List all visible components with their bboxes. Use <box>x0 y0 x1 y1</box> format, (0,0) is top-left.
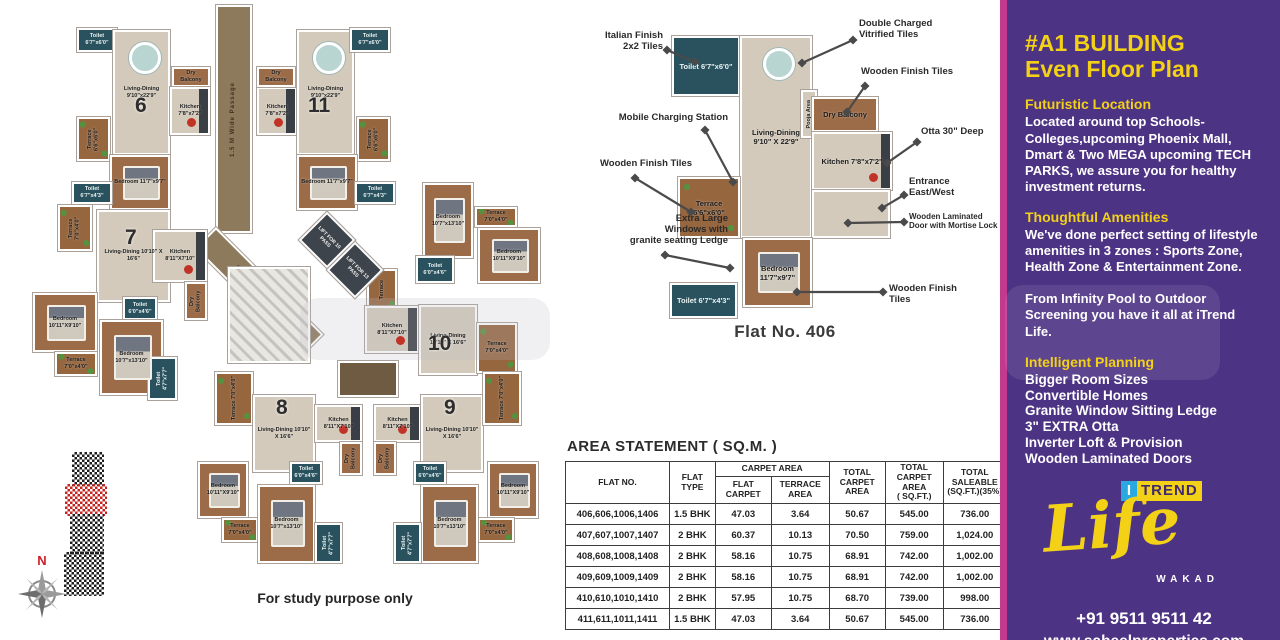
compass-icon <box>16 568 68 620</box>
table-cell: 406,606,1006,1406 <box>566 504 670 525</box>
f8-dry-balcony: Dry Balcony <box>340 442 362 475</box>
annotation-label: Entrance East/West <box>909 176 989 198</box>
f8-toilet-hall: Toilet 6'0"x4'6" <box>290 462 322 484</box>
table-cell: 407,607,1007,1407 <box>566 525 670 546</box>
table-cell: 2 BHK <box>670 525 716 546</box>
annotation-label: Mobile Charging Station <box>603 112 728 123</box>
brochure-page: 1.5 M Wide Passage2 M Wide PassageToilet… <box>0 0 1280 640</box>
passage-vertical: 1.5 M Wide Passage <box>216 5 252 233</box>
table-cell: 68.70 <box>829 588 885 609</box>
annotation-label: Extra Large Windows with granite seating… <box>580 213 728 247</box>
f10-terrace-bottom: Terrace 7'0"x4'0" <box>477 323 517 373</box>
f8-terrace-bottom: Terrace 7'0"x4'0" <box>222 518 258 542</box>
flat-number-7: 7 <box>125 227 137 248</box>
table-cell: 411,611,1011,1411 <box>566 609 670 630</box>
f7-terrace-left: Terrace 7'0"x4'0" <box>55 352 97 376</box>
f8-kitchen: Kitchen 8'11"X7'10" <box>315 405 362 442</box>
f11-toilet-top: Toilet 6'7"x6'0" <box>350 28 390 52</box>
table-cell: 1,002.00 <box>943 546 1006 567</box>
annotation-label: Wooden Finish Tiles <box>580 158 692 169</box>
info-sidebar: #A1 BUILDINGEven Floor Plan Futuristic L… <box>1000 0 1280 640</box>
table-cell: 739.00 <box>885 588 943 609</box>
table-cell: 1.5 BHK <box>670 504 716 525</box>
area-statement: AREA STATEMENT ( SQ.M. ) FLAT NO. FLAT T… <box>565 438 1007 630</box>
f9-toilet-bottom: Toilet 4'7"x7'7" <box>394 523 421 563</box>
table-cell: 759.00 <box>885 525 943 546</box>
lift-lobby <box>338 361 398 397</box>
f6-living: Living-Dining 9'10"x22'9" <box>113 30 170 155</box>
table-cell: 2 BHK <box>670 546 716 567</box>
compass-rose: N <box>12 553 72 625</box>
f6-bedroom: Bedroom 11'7"x9'7" <box>110 155 170 210</box>
table-cell: 736.00 <box>943 609 1006 630</box>
f8-terrace-top: Terrace 7'0"x4'0" <box>215 372 253 425</box>
table-cell: 10.75 <box>771 567 829 588</box>
intelligent-planning-list: Bigger Room SizesConvertible HomesGranit… <box>1025 372 1263 468</box>
annotation-label: Wooden Laminated Door with Mortise Lock <box>909 212 1021 231</box>
col-flat-type: FLAT TYPE <box>670 462 716 504</box>
table-cell: 47.03 <box>715 504 771 525</box>
f10-bedroom-top: Bedroom 10'7"x13'10" <box>423 183 473 258</box>
table-cell: 545.00 <box>885 609 943 630</box>
table-cell: 10.75 <box>771 546 829 567</box>
table-cell: 1,024.00 <box>943 525 1006 546</box>
annotation-label: Wooden Finish Tiles <box>889 283 979 305</box>
flat-number-9: 9 <box>444 397 456 418</box>
list-item: Inverter Loft & Provision <box>1025 435 1263 451</box>
table-cell: 2 BHK <box>670 567 716 588</box>
f9-kitchen: Kitchen 8'11"X7'10" <box>374 405 421 442</box>
f10-terrace-right: Terrace 7'0"x4'0" <box>475 207 517 227</box>
f7-bedroom-left: Bedroom 10'11"X9'10" <box>33 293 97 352</box>
f9-bedroom-right: Bedroom 10'11"X9'10" <box>488 462 538 518</box>
table-cell: 50.67 <box>829 504 885 525</box>
table-cell: 736.00 <box>943 504 1006 525</box>
table-cell: 2 BHK <box>670 588 716 609</box>
table-cell: 409,609,1009,1409 <box>566 567 670 588</box>
f8-bedroom-bottom: Bedroom 10'7"x13'10" <box>258 485 315 563</box>
f6-toilet-bottom: Toilet 6'7"x4'3" <box>72 182 112 204</box>
f11-living: Living-Dining 9'10"x22'9" <box>297 30 354 155</box>
building-title: #A1 BUILDINGEven Floor Plan <box>1025 30 1263 82</box>
f9-terrace-bottom: Terrace 7'0"x4'0" <box>478 518 514 542</box>
f9-terrace-top: Terrace 7'0"x4'0" <box>483 372 521 425</box>
logo-city-label: WAKAD <box>1156 574 1219 585</box>
col-flat-carpet: FLAT CARPET <box>715 477 771 504</box>
table-cell: 60.37 <box>715 525 771 546</box>
section-heading-futuristic-location: Futuristic Location <box>1025 96 1263 112</box>
list-item: Convertible Homes <box>1025 388 1263 404</box>
table-cell: 58.16 <box>715 567 771 588</box>
stairs <box>228 267 310 363</box>
f11-toilet-bottom: Toilet 6'7"x4'3" <box>355 182 395 204</box>
f7-terrace-top: Terrace 7'0"x4'0" <box>58 205 92 251</box>
f11-kitchen: Kitchen 7'8"x7'2" <box>257 87 297 135</box>
table-cell: 58.16 <box>715 546 771 567</box>
annotation-label: Otta 30" Deep <box>921 126 1016 137</box>
table-row: 406,606,1006,14061.5 BHK47.033.6450.6754… <box>566 504 1007 525</box>
table-cell: 57.95 <box>715 588 771 609</box>
table-cell: 70.50 <box>829 525 885 546</box>
table-cell: 1.5 BHK <box>670 609 716 630</box>
table-cell: 742.00 <box>885 567 943 588</box>
table-cell: 408,608,1008,1408 <box>566 546 670 567</box>
key-plan-highlight <box>65 484 107 516</box>
f6-kitchen: Kitchen 7'8"x7'2" <box>170 87 210 135</box>
annotation-label: Wooden Finish Tiles <box>861 66 991 77</box>
table-cell: 3.64 <box>771 504 829 525</box>
area-statement-title: AREA STATEMENT ( SQ.M. ) <box>567 438 1007 455</box>
table-cell: 3.64 <box>771 609 829 630</box>
list-item: Granite Window Sitting Ledge <box>1025 403 1263 419</box>
itrend-life-logo: I TREND Life WAKAD <box>1025 479 1263 595</box>
col-terrace-area: TERRACE AREA <box>771 477 829 504</box>
f8-toilet-bottom: Toilet 4'7"x7'7" <box>315 523 342 563</box>
flat-number-11: 11 <box>308 95 330 116</box>
annotation-label: Double Charged Vitrified Tiles <box>859 18 979 40</box>
col-total-saleable: TOTAL SALEABLE (SQ.FT.)(35%) <box>943 462 1006 504</box>
disclaimer-text: For study purpose only <box>205 590 465 606</box>
f10-bedroom-right: Bedroom 10'11"X9'10" <box>478 228 540 283</box>
logo-life-script: Life <box>1040 476 1183 575</box>
compass-north-label: N <box>12 553 72 568</box>
area-statement-table: FLAT NO. FLAT TYPE CARPET AREA TOTAL CAR… <box>565 461 1007 630</box>
thoughtful-amenities-text: We've done perfect setting of lifestyle … <box>1025 227 1263 275</box>
table-row: 407,607,1007,14072 BHK60.3710.1370.50759… <box>566 525 1007 546</box>
f6-toilet-top: Toilet 6'7"x6'0" <box>77 28 117 52</box>
table-cell: 68.91 <box>829 546 885 567</box>
f11-bedroom: Bedroom 11'7"x9'7" <box>297 155 357 210</box>
f11-dry-balcony: Dry Balcony <box>257 67 295 87</box>
website-url: www.saheelproperties.com <box>1025 633 1263 640</box>
section-heading-thoughtful-amenities: Thoughtful Amenities <box>1025 209 1263 225</box>
f7-dry-balcony: Dry Balcony <box>185 282 207 320</box>
flat-406-detail-plan: Flat No. 406 Toilet 6'7"x6'0"Living-Dini… <box>565 0 1010 436</box>
table-row: 409,609,1009,14092 BHK58.1610.7568.91742… <box>566 567 1007 588</box>
f9-toilet-hall: Toilet 6'0"x4'6" <box>414 462 446 484</box>
table-cell: 47.03 <box>715 609 771 630</box>
f10-kitchen: Kitchen 8'11"X7'10" <box>365 306 419 353</box>
flat-number-6: 6 <box>135 95 147 116</box>
key-plan-block <box>70 514 104 554</box>
table-cell: 998.00 <box>943 588 1006 609</box>
table-cell: 10.13 <box>771 525 829 546</box>
table-cell: 10.75 <box>771 588 829 609</box>
f6-dry-balcony: Dry Balcony <box>172 67 210 87</box>
list-item: 3" EXTRA Otta <box>1025 419 1263 435</box>
table-row: 410,610,1010,14102 BHK57.9510.7568.70739… <box>566 588 1007 609</box>
table-cell: 50.67 <box>829 609 885 630</box>
phone-number: +91 9511 9511 42 <box>1025 609 1263 629</box>
flat-number-10: 10 <box>428 333 451 354</box>
table-cell: 545.00 <box>885 504 943 525</box>
f7-toilet-hall: Toilet 6'0"x4'6" <box>123 297 157 320</box>
key-plan-block <box>72 452 104 486</box>
col-total-carpet: TOTAL CARPET AREA <box>829 462 885 504</box>
infinity-pool-text: From Infinity Pool to Outdoor Screening … <box>1025 291 1263 339</box>
table-cell: 410,610,1010,1410 <box>566 588 670 609</box>
table-cell: 1,002.00 <box>943 567 1006 588</box>
col-carpet-area-group: CARPET AREA <box>715 462 829 477</box>
table-cell: 742.00 <box>885 546 943 567</box>
table-row: 408,608,1008,14082 BHK58.1610.7568.91742… <box>566 546 1007 567</box>
list-item: Wooden Laminated Doors <box>1025 451 1263 467</box>
f9-dry-balcony: Dry Balcony <box>374 442 396 475</box>
list-item: Bigger Room Sizes <box>1025 372 1263 388</box>
annotation-label: Italian Finish 2x2 Tiles <box>583 30 663 52</box>
f9-bedroom-bottom: Bedroom 10'7"x13'10" <box>421 485 478 563</box>
f11-terrace: Terrace 6'6"x6'0" <box>357 117 390 161</box>
section-heading-intelligent-planning: Intelligent Planning <box>1025 354 1263 370</box>
futuristic-location-text: Located around top Schools-Colleges,upco… <box>1025 114 1263 195</box>
f7-kitchen: Kitchen 8'11"X7'10" <box>153 230 207 282</box>
table-cell: 68.91 <box>829 567 885 588</box>
col-total-carpet-sqft: TOTAL CARPET AREA ( SQ.FT.) <box>885 462 943 504</box>
flat-number-8: 8 <box>276 397 288 418</box>
f10-toilet: Toilet 6'0"x4'6" <box>416 256 454 283</box>
f6-terrace: Terrace 6'6"x6'0" <box>77 117 110 161</box>
table-row: 411,611,1011,14111.5 BHK47.033.6450.6754… <box>566 609 1007 630</box>
col-flat-no: FLAT NO. <box>566 462 670 504</box>
f8-bedroom-left: Bedroom 10'11"X9'10" <box>198 462 248 518</box>
